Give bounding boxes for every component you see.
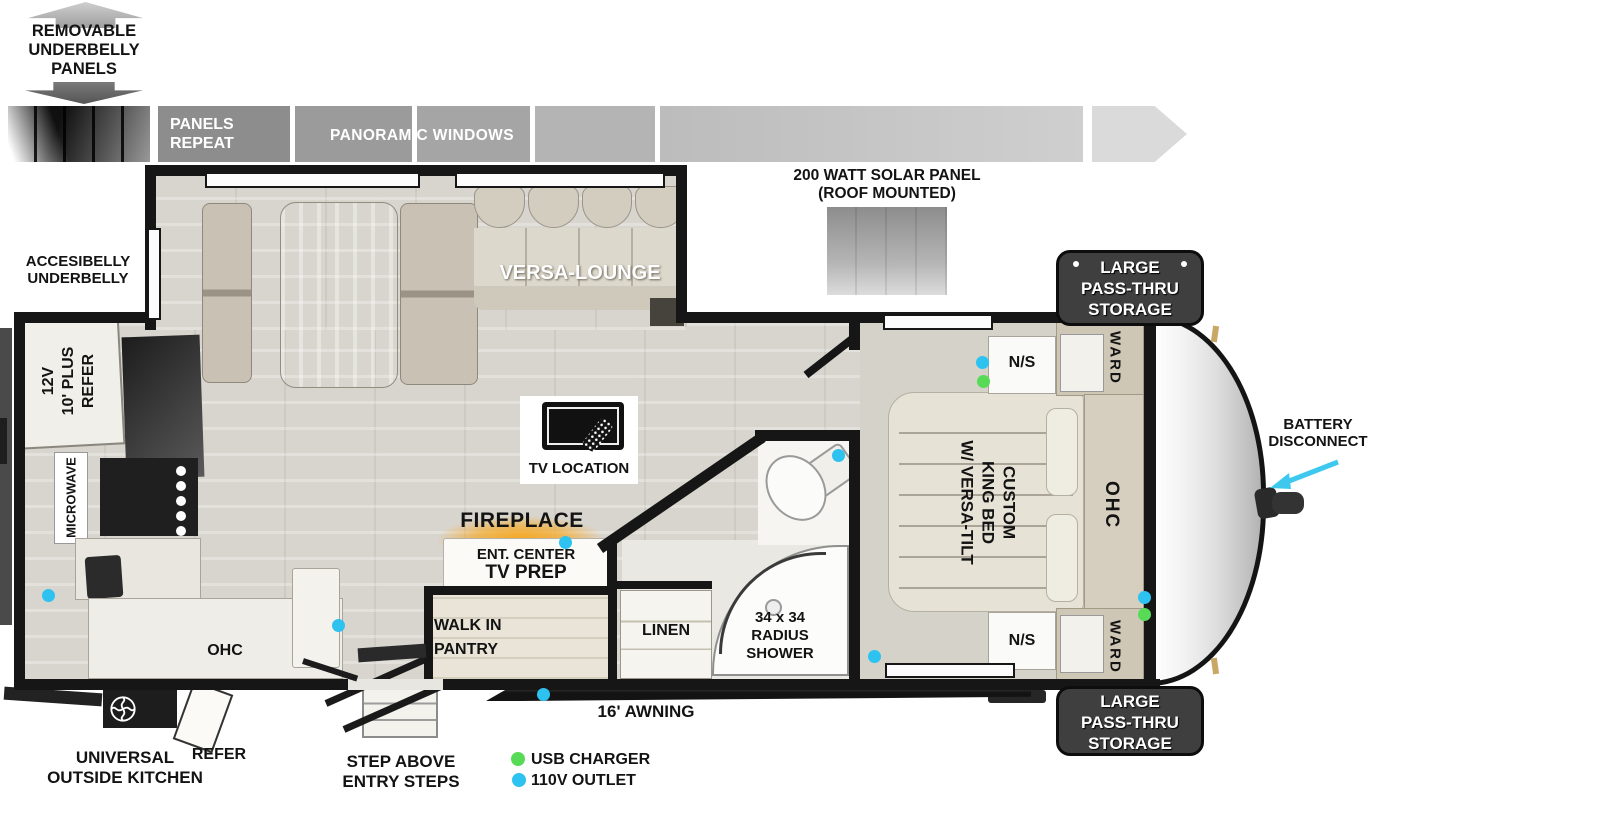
cap-hinge-top — [1211, 326, 1219, 343]
floorplan-canvas: REMOVABLEUNDERBELLYPANELS PANELSREPEAT P… — [0, 0, 1600, 837]
linen-top-wall — [617, 581, 712, 589]
wardrobe-top-door — [1060, 334, 1104, 392]
outside-kitchen-label: UNIVERSALOUTSIDE KITCHEN — [35, 748, 215, 787]
microwave-label: MICROWAVE — [63, 443, 78, 553]
fireplace-label: FIREPLACE — [442, 509, 602, 533]
kitchen-peninsula — [292, 568, 340, 668]
wardrobe-bottom-label: WARD — [1106, 612, 1123, 682]
nightstand-top-label: N/S — [988, 354, 1056, 373]
solar-panel-graphic — [827, 207, 947, 295]
panoramic-windows-label: PANORAMIC WINDOWS — [297, 127, 547, 145]
outlet-dot-nightstand-top — [976, 356, 989, 369]
outlet-dot-toilet-room — [832, 449, 845, 462]
outlet-dot-awning — [537, 688, 550, 701]
bath-wall-horizontal — [755, 430, 860, 441]
bedroom-right-wall — [1144, 312, 1156, 690]
wardrobe-top-label: WARD — [1106, 322, 1123, 394]
slideout-window-2 — [455, 172, 665, 188]
pantry-label: WALK INPANTRY — [434, 614, 518, 662]
solar-panel-label: 200 WATT SOLAR PANEL(ROOF MOUNTED) — [772, 167, 1002, 203]
outlet-dot-kitchen-wall — [42, 589, 55, 602]
legend-outlet-label: 110V OUTLET — [531, 772, 671, 791]
wardrobe-top — [1056, 318, 1144, 396]
burner-dots — [176, 466, 186, 476]
wardrobe-bottom-door — [1060, 615, 1104, 673]
rear-bumper — [0, 328, 12, 625]
bed-pillow-top — [1046, 408, 1078, 496]
range-stove — [100, 458, 198, 536]
bed-pillow-bottom — [1046, 514, 1078, 602]
slideout-side-window — [147, 228, 161, 320]
entry-steps-label: STEP ABOVEENTRY STEPS — [326, 752, 476, 791]
versa-lounge-label: VERSA-LOUNGE — [480, 262, 680, 285]
slideout-right-wall — [676, 165, 687, 323]
refrigerator-label: 12V10' PLUSREFER — [39, 321, 99, 441]
sofa-back-cushions — [474, 186, 686, 228]
bedroom-wall-main — [849, 430, 860, 690]
strip-arrow-icon — [1092, 106, 1187, 162]
wardrobe-bottom — [1056, 608, 1144, 683]
storage-front-bottom: LARGE PASS-THRU STORAGE — [1056, 686, 1204, 756]
outside-kitchen-box — [103, 690, 177, 728]
rear-bumper-notch — [0, 418, 7, 464]
accessible-underbelly-label: ACCESIBELLYUNDERBELLY — [8, 253, 148, 288]
panels-repeat-box: PANELSREPEAT — [158, 106, 290, 162]
king-bed-label: CUSTOMKING BEDW/ VERSA-TILT — [957, 418, 1020, 588]
kitchen-ohc-label: OHC — [200, 642, 250, 661]
body-left-wall — [14, 312, 25, 690]
underbelly-panels-strip — [8, 106, 150, 162]
fan-icon — [109, 695, 137, 723]
bedroom-top-window — [883, 314, 993, 330]
shower-label: 34 x 34RADIUSSHOWER — [726, 609, 834, 663]
usb-dot-bedroom-front — [1138, 608, 1151, 621]
outlet-dot-bedroom-door — [868, 650, 881, 663]
bedroom-ohc-label: OHC — [1100, 470, 1122, 540]
awning-label: 16' AWNING — [596, 702, 696, 722]
ent-center-label: ENT. CENTER — [443, 546, 609, 563]
removable-underbelly-label: REMOVABLEUNDERBELLYPANELS — [8, 22, 160, 79]
outlet-dot-fireplace — [559, 536, 572, 549]
storage-front-top: LARGE PASS-THRU STORAGE — [1056, 250, 1204, 326]
underbelly-down-arrow-icon — [25, 82, 143, 104]
slideout-window-1 — [205, 172, 420, 188]
panel-seams — [8, 106, 150, 162]
dinette-bench-right — [400, 203, 478, 385]
usb-dot-nightstand-top — [977, 375, 990, 388]
nightstand-bottom-label: N/S — [988, 632, 1056, 651]
dinette-table — [280, 202, 398, 388]
battery-arrow-icon — [1258, 456, 1348, 496]
outside-refer-door — [173, 681, 234, 754]
dinette-bench-left — [202, 203, 252, 383]
outlet-dot-peninsula — [332, 619, 345, 632]
battery-disconnect-label: BATTERYDISCONNECT — [1248, 416, 1388, 451]
bedroom-bottom-window — [885, 663, 1015, 678]
legend-outlet-dot — [512, 773, 526, 787]
outlet-dot-bedroom-front — [1138, 591, 1151, 604]
kitchen-sink — [85, 555, 124, 599]
legend-usb-label: USB CHARGER — [531, 751, 671, 770]
entry-door-gap — [348, 679, 443, 690]
cap-hinge-bottom — [1211, 658, 1219, 675]
body-bottom-wall — [14, 679, 1160, 690]
panels-repeat-label: PANELSREPEAT — [170, 115, 270, 153]
window-strip-seg-3 — [535, 106, 655, 162]
tv-location-label: TV LOCATION — [520, 460, 638, 477]
legend-usb-dot — [511, 752, 525, 766]
front-cap — [1150, 314, 1266, 686]
window-strip-seg-4 — [660, 106, 1083, 162]
linen-label: LINEN — [620, 622, 712, 641]
tv-prep-label: TV PREP — [443, 562, 609, 584]
